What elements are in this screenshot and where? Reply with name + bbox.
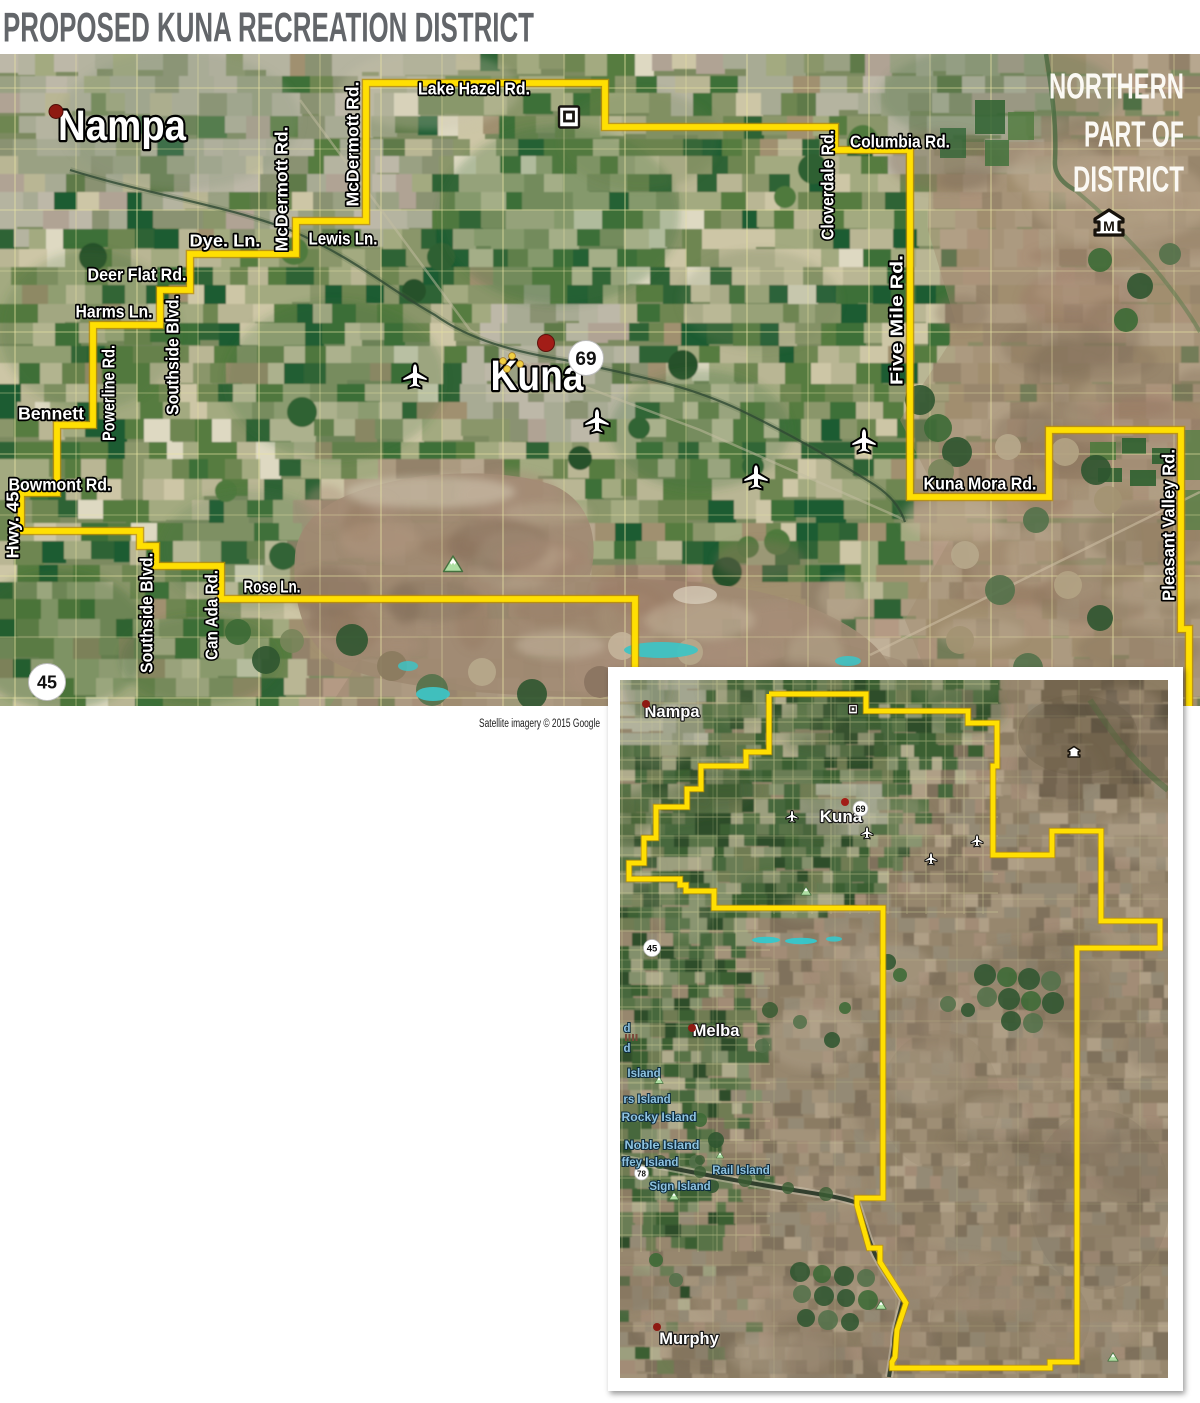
svg-text:Nampa: Nampa <box>58 102 187 150</box>
svg-text:Rail Island: Rail Island <box>712 1165 770 1177</box>
svg-text:Bennett: Bennett <box>18 403 84 423</box>
svg-text:Rose Ln.: Rose Ln. <box>244 576 301 596</box>
svg-text:d: d <box>623 1023 630 1035</box>
svg-text:rs Island: rs Island <box>623 1094 670 1106</box>
svg-text:Kuna Mora Rd.: Kuna Mora Rd. <box>924 473 1037 493</box>
svg-text:Melba: Melba <box>693 1022 741 1040</box>
svg-text:ffey Island: ffey Island <box>622 1157 679 1169</box>
svg-text:Hwy. 45: Hwy. 45 <box>2 491 22 558</box>
svg-text:69: 69 <box>575 349 596 370</box>
svg-text:Noble Island: Noble Island <box>625 1140 700 1152</box>
svg-text:PROPOSED KUNA RECREATION DISTR: PROPOSED KUNA RECREATION DISTRICT <box>3 4 534 51</box>
svg-text:Rocky Island: Rocky Island <box>622 1112 697 1124</box>
svg-text:d: d <box>623 1043 630 1055</box>
svg-text:Satellite imagery © 2015 Googl: Satellite imagery © 2015 Google <box>479 718 600 730</box>
svg-text:Pleasant Valley Rd.: Pleasant Valley Rd. <box>1158 449 1178 601</box>
svg-text:Powerline Rd.: Powerline Rd. <box>98 345 118 441</box>
svg-text:Dye. Ln.: Dye. Ln. <box>190 230 261 250</box>
svg-text:Bowmont Rd.: Bowmont Rd. <box>9 474 112 494</box>
svg-text:Harms Ln.: Harms Ln. <box>76 301 153 321</box>
svg-text:McDermott Rd.: McDermott Rd. <box>271 127 291 252</box>
svg-text:45: 45 <box>647 944 658 955</box>
svg-text:Island: Island <box>627 1068 660 1080</box>
svg-text:Deer Flat Rd.: Deer Flat Rd. <box>88 264 187 284</box>
svg-text:Five Mile Rd.: Five Mile Rd. <box>886 255 906 385</box>
svg-text:NORTHERN: NORTHERN <box>1049 66 1184 107</box>
svg-text:Southside Blvd.: Southside Blvd. <box>136 553 156 673</box>
svg-text:45: 45 <box>37 673 57 693</box>
svg-text:Nampa: Nampa <box>644 703 700 721</box>
svg-text:Cloverdale Rd.: Cloverdale Rd. <box>817 130 837 240</box>
svg-text:Lake Hazel Rd.: Lake Hazel Rd. <box>418 78 530 98</box>
svg-text:Murphy: Murphy <box>659 1330 719 1348</box>
svg-text:PART OF: PART OF <box>1084 114 1184 155</box>
svg-text:69: 69 <box>855 804 865 814</box>
svg-text:DISTRICT: DISTRICT <box>1073 158 1184 199</box>
svg-text:Southside Blvd.: Southside Blvd. <box>162 295 182 415</box>
svg-text:McDermott Rd.: McDermott Rd. <box>342 82 362 207</box>
svg-text:78: 78 <box>637 1170 646 1179</box>
svg-text:Columbia Rd.: Columbia Rd. <box>850 131 950 151</box>
svg-text:Sign Island: Sign Island <box>649 1181 710 1193</box>
svg-text:Can Ada Rd.: Can Ada Rd. <box>201 570 221 660</box>
svg-text:Lewis Ln.: Lewis Ln. <box>309 228 378 248</box>
svg-text:M: M <box>1103 218 1115 234</box>
